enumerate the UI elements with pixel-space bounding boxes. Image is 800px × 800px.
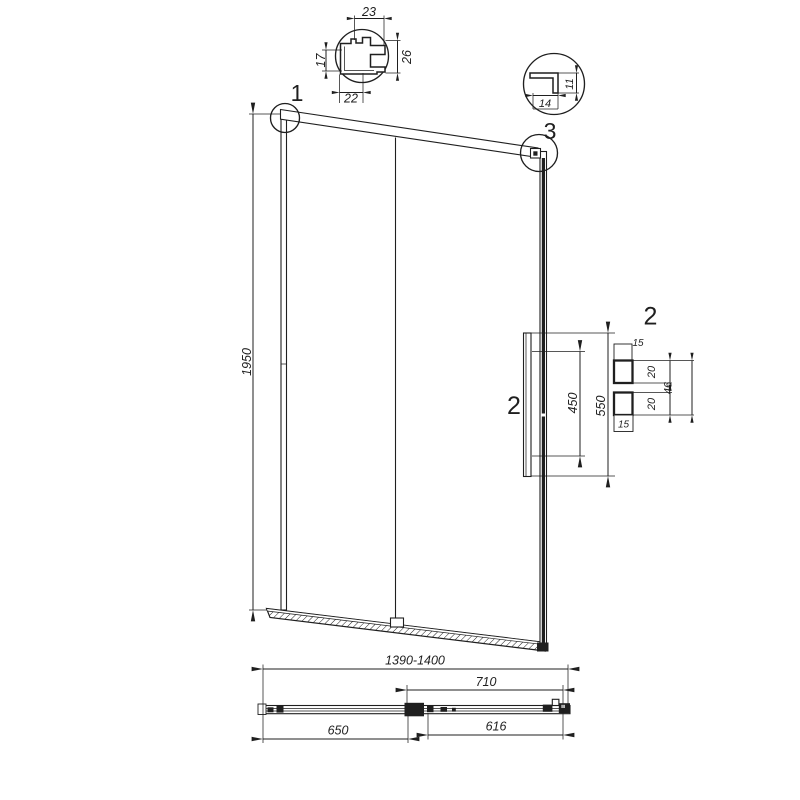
plan-view [258,699,570,716]
dim-post-top-label: 20 [646,365,658,379]
dimension-height: 1950 [240,114,280,610]
dim-door-width-label: 710 [476,675,497,689]
door-frame-foot [537,643,549,652]
dim-profile-left: 17 [314,53,328,68]
callout-1-label: 1 [291,80,304,106]
door-handle [524,333,532,477]
bottom-rail-edge [267,609,543,645]
dim-handle-inner-label: 450 [566,393,580,414]
dim-span-label: 46 [663,381,675,394]
wall-bracket-right [559,703,570,713]
wall-profile-detail: 23 17 26 22 [314,5,414,106]
front-view: 1 3 2 [267,80,558,652]
dim-corner-width: 14 [539,98,551,110]
center-fitting-a [427,705,434,712]
center-roller-block [405,703,425,717]
center-fitting-b [441,707,448,712]
right-fitting-cap [552,699,559,705]
handle-offset-top-box [614,344,632,361]
callout-2-door-label: 2 [507,392,521,420]
left-fitting-a [268,707,274,712]
dim-profile-right: 26 [400,50,414,65]
dim-fixed-panel-label: 650 [328,724,349,738]
dim-post-bottom-label: 20 [646,397,658,411]
plan-dimensions: 1390-1400 710 650 616 [263,654,568,744]
door-frame-right-fill [542,158,545,644]
door-frame-joint [542,414,546,417]
corner-profile-section [530,73,558,93]
left-wall-profile [281,111,287,610]
dim-handle-outer-label: 550 [594,396,608,417]
dim-height-label: 1950 [240,348,254,376]
handle-section-detail: 2 15 20 20 46 15 [614,303,694,432]
dim-corner-depth: 11 [564,78,576,89]
center-fitting-c [452,708,456,712]
wall-profile-section [341,38,386,75]
dim-glass-width-label: 616 [486,720,507,734]
corner-profile-detail: 11 14 [524,54,585,115]
technical-drawing: 1 3 2 1950 450 550 2 15 20 20 [0,0,800,800]
callout-2-detail-label: 2 [644,303,658,331]
handle-post-top [614,361,633,384]
right-fitting-a [543,705,553,712]
dim-offset-top-label: 15 [633,338,645,349]
dim-total-width-label: 1390-1400 [385,654,445,668]
corner-bracket-bolt [533,151,537,155]
dim-profile-top-width: 23 [361,5,376,19]
top-rail [281,110,539,158]
handle-post-bottom [614,393,633,416]
left-fitting-b [277,706,284,713]
wall-bracket-left [258,704,266,715]
dim-profile-bottom: 22 [343,92,358,106]
callout-3-label: 3 [544,118,557,144]
dim-offset-bottom-label: 15 [618,420,630,431]
bottom-guide-block [391,618,404,627]
